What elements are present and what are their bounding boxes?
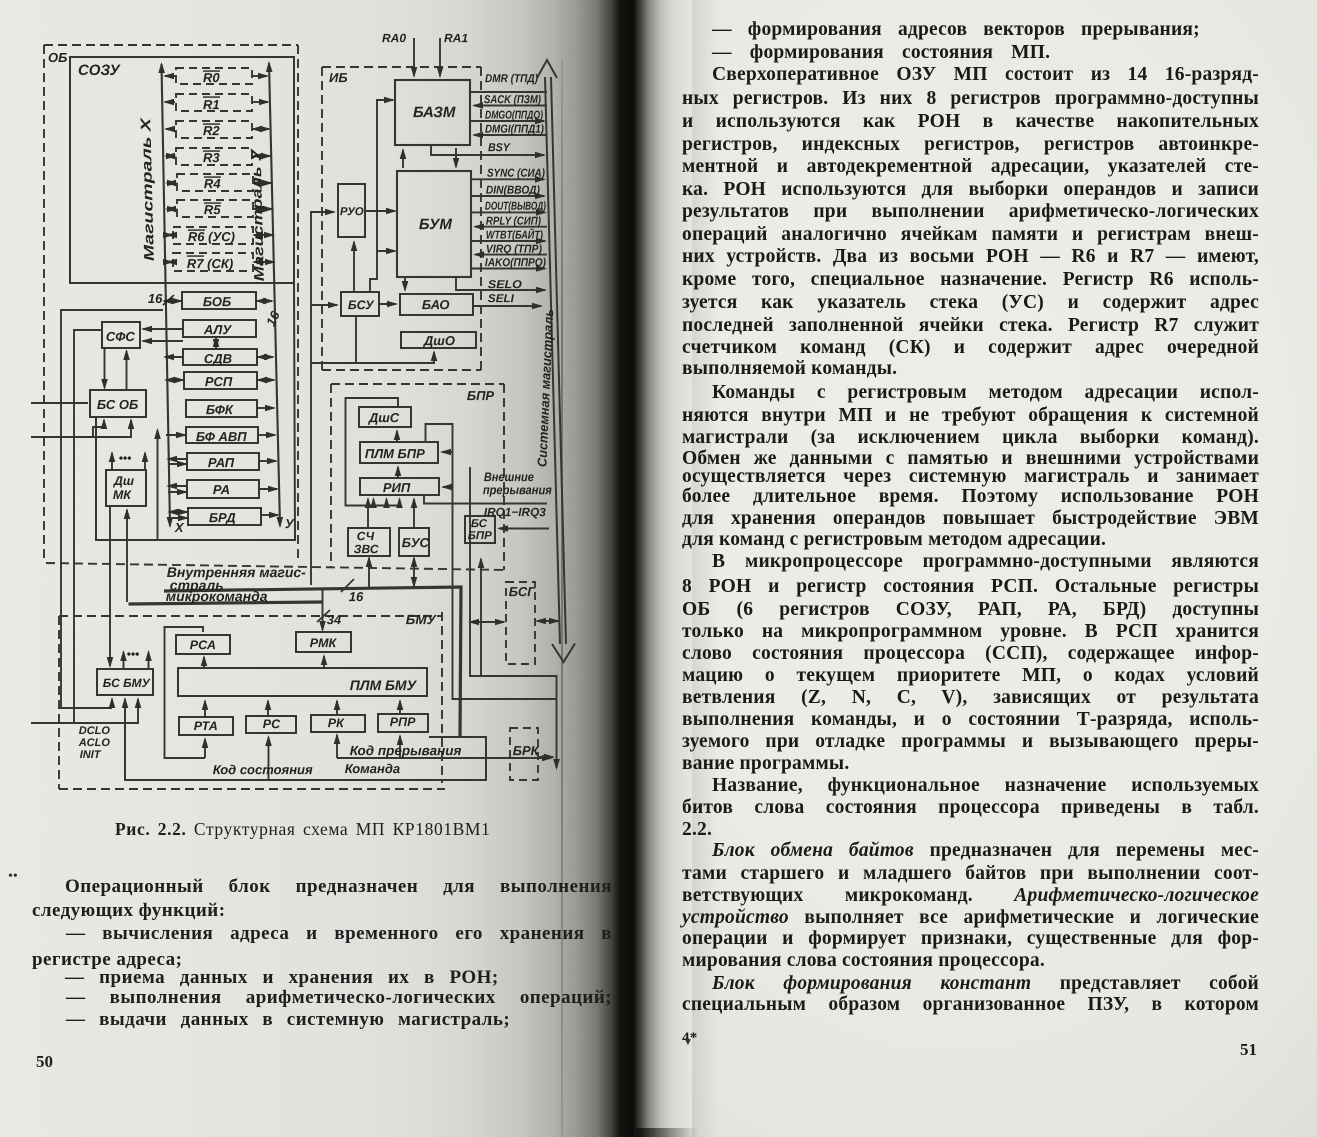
svg-text:DMGI(ППД1): DMGI(ППД1): [485, 124, 544, 136]
svg-text:БМУ: БМУ: [406, 612, 437, 627]
svg-text:RA0: RA0: [382, 31, 406, 45]
svg-text:Магистраль У: Магистраль У: [247, 147, 266, 281]
svg-text:DOUT(ВЫВОД): DOUT(ВЫВОД): [485, 201, 546, 213]
svg-text:DMGO(ППДО): DMGO(ППДО): [485, 110, 543, 122]
svg-text:R3: R3: [203, 150, 220, 165]
svg-text:Магистраль X: Магистраль X: [137, 116, 157, 262]
svg-text:СФС: СФС: [106, 329, 136, 344]
svg-text:ДшО: ДшО: [423, 333, 455, 348]
svg-text:16: 16: [148, 291, 163, 306]
svg-text:Дш: Дш: [113, 474, 134, 488]
svg-text:Внешние: Внешние: [484, 470, 534, 484]
svg-text:РА: РА: [213, 482, 230, 497]
svg-text:R1: R1: [203, 97, 220, 112]
svg-text:РТА: РТА: [194, 719, 218, 733]
svg-text:РС: РС: [263, 717, 281, 731]
svg-text:WTBT(БАЙТ): WTBT(БАЙТ): [486, 229, 543, 242]
svg-text:DMR (ТПД): DMR (ТПД): [485, 73, 538, 85]
svg-text:БПР: БПР: [468, 530, 492, 542]
svg-text:SACK (ПЗМ): SACK (ПЗМ): [484, 94, 541, 106]
svg-text:RA1: RA1: [444, 31, 468, 45]
svg-text:СОЗУ: СОЗУ: [78, 62, 122, 79]
svg-text:•••: •••: [127, 647, 140, 661]
svg-text:INIT: INIT: [80, 749, 102, 761]
svg-text:РАП: РАП: [208, 455, 235, 470]
svg-text:VIRQ (ТПР): VIRQ (ТПР): [486, 244, 542, 256]
svg-text:ОБ: ОБ: [48, 50, 67, 65]
svg-text:R0: R0: [203, 70, 220, 85]
svg-text:R7 (СК): R7 (СК): [187, 256, 233, 271]
svg-text:РСП: РСП: [205, 374, 233, 389]
svg-text:У: У: [285, 516, 295, 531]
svg-text:Код состояния: Код состояния: [213, 762, 313, 777]
svg-text:БС БМУ: БС БМУ: [103, 676, 151, 690]
svg-text:ПЛМ БМУ: ПЛМ БМУ: [350, 677, 418, 693]
svg-text:БС ОБ: БС ОБ: [97, 397, 138, 412]
svg-text:SELI: SELI: [488, 293, 515, 305]
svg-text:R5: R5: [204, 202, 221, 217]
svg-text:16: 16: [349, 589, 364, 604]
svg-text:АЛУ: АЛУ: [203, 322, 232, 337]
svg-text:СЧ: СЧ: [357, 529, 375, 543]
svg-text:БРД: БРД: [209, 510, 236, 525]
svg-text:БАЗМ: БАЗМ: [413, 104, 456, 121]
svg-text:БАО: БАО: [422, 297, 450, 312]
svg-text:16: 16: [263, 308, 283, 328]
svg-text:БУС: БУС: [402, 535, 430, 550]
svg-text:БСГ: БСГ: [509, 584, 536, 599]
svg-text:SYNC (СИА): SYNC (СИА): [487, 168, 545, 180]
svg-text:R6 (УС): R6 (УС): [188, 229, 235, 244]
svg-text:SELO: SELO: [488, 279, 522, 291]
svg-text:СДВ: СДВ: [204, 351, 232, 366]
svg-text:МК: МК: [113, 488, 132, 502]
svg-text:РСА: РСА: [190, 638, 216, 652]
svg-text:микрокоманда: микрокоманда: [166, 588, 268, 604]
svg-text:RPLY (СИП): RPLY (СИП): [486, 216, 541, 228]
svg-text:Код прерывания: Код прерывания: [350, 743, 462, 758]
svg-text:РМК: РМК: [310, 636, 338, 650]
svg-text:•••: •••: [119, 451, 132, 465]
svg-text:РУО: РУО: [340, 206, 364, 218]
svg-text:РПР: РПР: [390, 715, 416, 729]
svg-text:прерывания: прерывания: [483, 483, 553, 497]
svg-text:ПЛМ БПР: ПЛМ БПР: [365, 446, 425, 461]
svg-text:ACLO: ACLO: [78, 737, 111, 749]
svg-text:Команда: Команда: [345, 761, 400, 776]
svg-text:БФК: БФК: [206, 402, 234, 417]
svg-text:R4: R4: [204, 176, 221, 191]
svg-text:РИП: РИП: [383, 480, 411, 495]
svg-text:IRQ1−IRQ3: IRQ1−IRQ3: [484, 505, 546, 519]
svg-text:ЗВС: ЗВС: [354, 542, 379, 556]
svg-text:ДшС: ДшС: [368, 410, 400, 425]
svg-text:DIN(ВВОД): DIN(ВВОД): [486, 185, 540, 197]
svg-text:DCLO: DCLO: [79, 725, 111, 737]
svg-text:БУМ: БУМ: [419, 216, 452, 233]
svg-text:IAKO(ППРО): IAKO(ППРО): [485, 257, 546, 269]
svg-text:БФ АВП: БФ АВП: [196, 429, 247, 444]
svg-text:БПР: БПР: [467, 388, 495, 403]
svg-text:X: X: [174, 520, 185, 535]
svg-text:БС: БС: [471, 518, 488, 530]
svg-text:34: 34: [327, 612, 342, 627]
svg-text:ИБ: ИБ: [329, 70, 348, 85]
svg-text:РК: РК: [328, 716, 345, 730]
svg-text:БРК: БРК: [513, 743, 540, 758]
svg-text:БСУ: БСУ: [348, 298, 375, 312]
svg-text:R2: R2: [203, 123, 220, 138]
svg-text:БОБ: БОБ: [203, 294, 231, 309]
svg-text:BSY: BSY: [488, 142, 511, 154]
